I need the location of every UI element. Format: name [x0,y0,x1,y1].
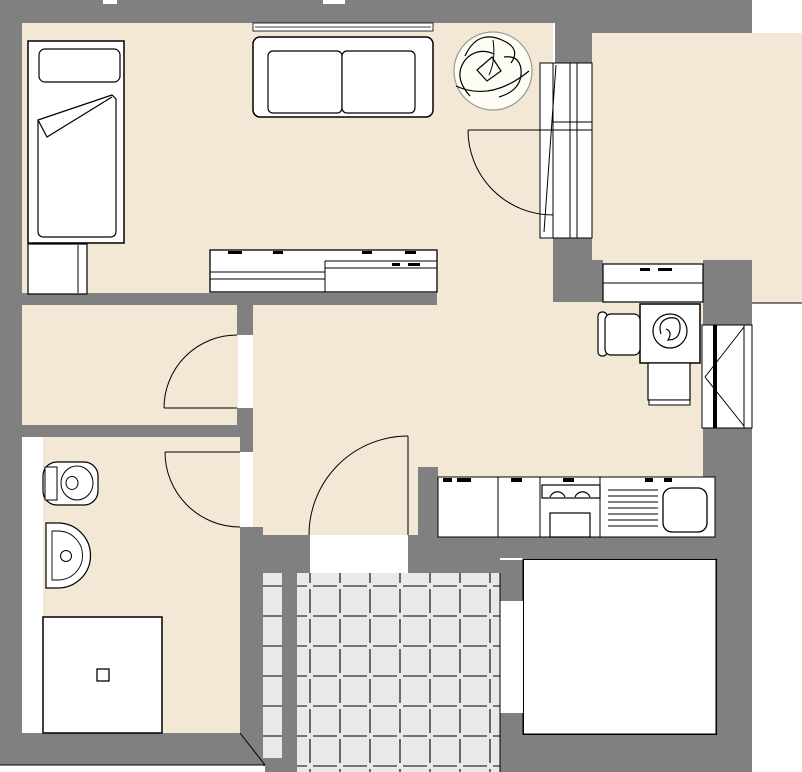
sideboard-tick-4 [405,251,416,254]
top-wall-notch-a [103,0,117,4]
sideboard-tick-1 [228,251,242,254]
wall-right-kitchen [715,477,752,558]
wall-bathroom-north [22,425,253,437]
wall-topright-room-west-lower-a [553,238,592,260]
bench-foot [649,400,690,405]
white-room-floor [523,559,716,734]
white-room [501,559,716,734]
floor-plan [0,0,802,772]
top-wall-notch-b [323,0,345,4]
wall-whiteroom-jamb-bottom [500,713,523,734]
counter-tick-1 [443,478,452,482]
table-plant-circle [653,314,687,348]
shelf-topright-room [603,264,703,302]
window-east [702,325,752,428]
wall-kitchen-south-a [408,535,500,573]
wall-topright-room-west-lower-b [553,260,603,302]
shelf-tick-1 [640,268,650,271]
sideboard [210,250,437,292]
wall-right-lower [716,558,752,734]
counter-tick-5 [645,478,653,482]
sideboard-tick-3 [362,251,372,254]
bed-blanket [38,95,116,237]
wall-top-outer [0,0,560,23]
door-gap [238,335,253,408]
wall-right-upper [703,260,752,325]
tile-main [297,573,500,772]
tile-strip [263,573,282,758]
counter-tick-2 [457,478,471,482]
bottom-outer-white-strip [0,766,265,772]
wall-hall-pillar [253,535,310,573]
bathroom-wall-strip [22,437,43,733]
wall-bottom-right [500,734,752,772]
entry-tiles [263,573,500,772]
shelf-tick-2 [658,268,672,271]
kitchen-counter [438,477,715,537]
door-frame [540,63,592,238]
chair-seat [605,314,640,355]
shower-drain [97,669,109,681]
door-gap [240,452,253,527]
white-room-opening [501,601,523,713]
bench [648,363,690,400]
lower-living-floor [253,477,440,535]
wall-whiteroom-jamb-top [500,560,523,601]
oven [550,513,590,537]
window-sash-band [713,325,717,428]
door-gap [310,535,408,573]
toilet-tank [45,467,57,500]
wall-kitchen-west-stub [418,467,438,537]
sideboard-tick-5 [392,263,400,266]
wall-bedroom-south [22,293,437,305]
wall-tile-strip-cap [263,758,282,772]
sofa-seat-right [342,51,415,113]
sideboard-tick-2 [273,251,283,254]
wall-hall-thin [282,573,297,772]
wall-closet-jamb-top [237,305,253,335]
kitchen-sink [663,488,707,532]
sideboard-body [210,250,437,292]
bed-pillow [39,49,120,82]
wall-bath-door-jamb [240,437,253,452]
top-right-room-floor [592,33,802,303]
counter-tick-4 [563,478,574,482]
wall-bottom-left-outer [0,733,265,765]
wall-left-outer [0,0,22,765]
sofa-group [253,23,433,117]
counter-tick-6 [664,478,672,482]
wall-right-mid [703,428,752,477]
sideboard-tick-6 [408,263,420,266]
counter-tick-3 [511,478,522,482]
wall-topright-room-west-upper [555,23,592,63]
sofa-seat-left [268,51,342,113]
plant-large [454,32,532,110]
floor-plan-canvas [0,0,802,772]
wall-kitchen-south-b [498,537,716,558]
